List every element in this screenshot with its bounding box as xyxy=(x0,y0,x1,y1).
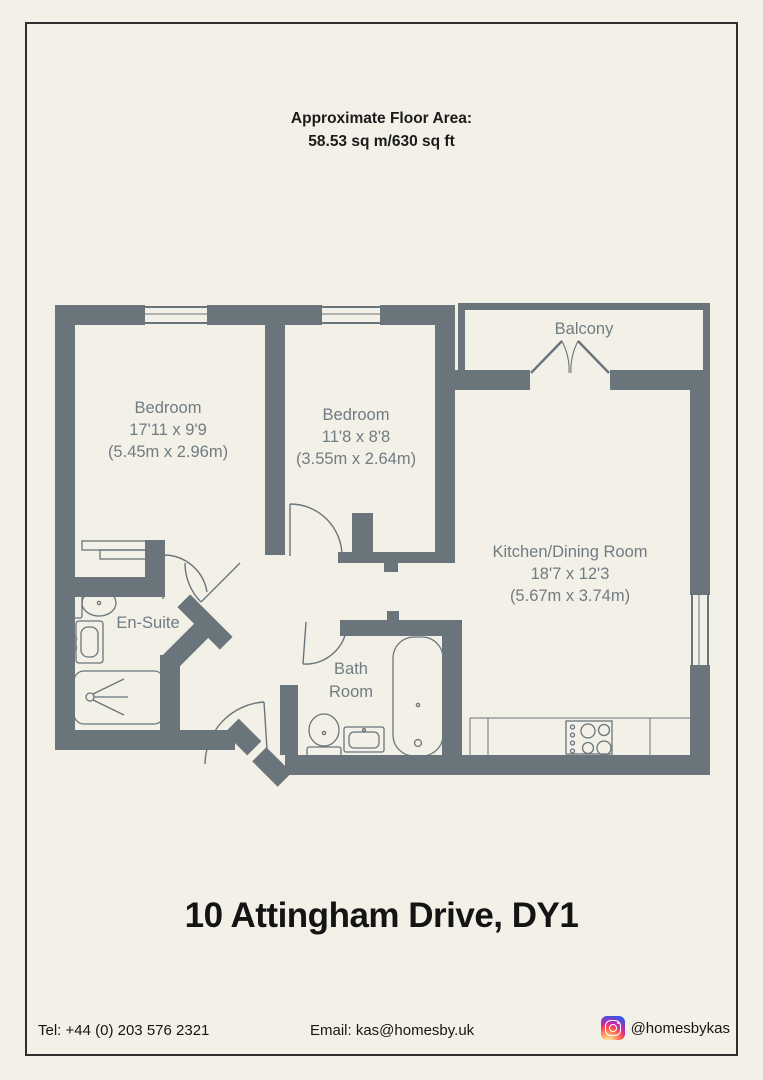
footer-instagram: @homesbykas xyxy=(601,1016,730,1040)
bedroom1-door-arc xyxy=(185,563,240,602)
instagram-icon xyxy=(601,1016,625,1040)
balcony-label: Balcony xyxy=(555,320,614,338)
ensuite-shower xyxy=(74,671,164,724)
bedroom1-label: Bedroom xyxy=(135,399,202,417)
bedroom2-dims-metric: (3.55m x 2.64m) xyxy=(296,450,416,468)
bathroom-toilet xyxy=(307,714,341,757)
kitchen-dims-metric: (5.67m x 3.74m) xyxy=(510,587,630,605)
bathroom-sink xyxy=(344,727,384,752)
bedroom1-dims-metric: (5.45m x 2.96m) xyxy=(108,443,228,461)
kitchen-label: Kitchen/Dining Room xyxy=(493,543,648,561)
bedroom1-wardrobe xyxy=(82,541,148,559)
ensuite-sink xyxy=(71,621,103,663)
kitchen-hob xyxy=(566,721,612,755)
balcony-french-door-curves xyxy=(562,341,578,373)
instagram-handle: @homesbykas xyxy=(631,1020,730,1037)
bathtub xyxy=(393,637,443,756)
property-address-title: 10 Attingham Drive, DY1 xyxy=(0,896,763,936)
bedroom2-dims-imperial: 11'8 x 8'8 xyxy=(322,428,390,446)
bedroom2-door-arc xyxy=(290,504,342,556)
ensuite-label: En-Suite xyxy=(116,614,179,632)
kitchen-dims-imperial: 18'7 x 12'3 xyxy=(531,565,610,583)
windows xyxy=(145,307,708,665)
bedroom2-label: Bedroom xyxy=(323,406,390,424)
bathroom-label-line2: Room xyxy=(329,683,373,701)
bedroom1-dims-imperial: 17'11 x 9'9 xyxy=(129,421,207,439)
bathroom-label-line1: Bath xyxy=(334,660,368,678)
instagram-icon-dot xyxy=(617,1022,620,1025)
footer-telephone: Tel: +44 (0) 203 576 2321 xyxy=(38,1022,209,1039)
balcony-french-doors xyxy=(531,341,609,373)
ensuite-door-arc xyxy=(163,555,207,599)
floorplan-page: Approximate Floor Area: 58.53 sq m/630 s… xyxy=(0,0,763,1080)
kitchen-counter xyxy=(470,718,690,755)
footer-email: Email: kas@homesby.uk xyxy=(310,1022,474,1039)
bathroom-door-arc xyxy=(303,622,346,664)
